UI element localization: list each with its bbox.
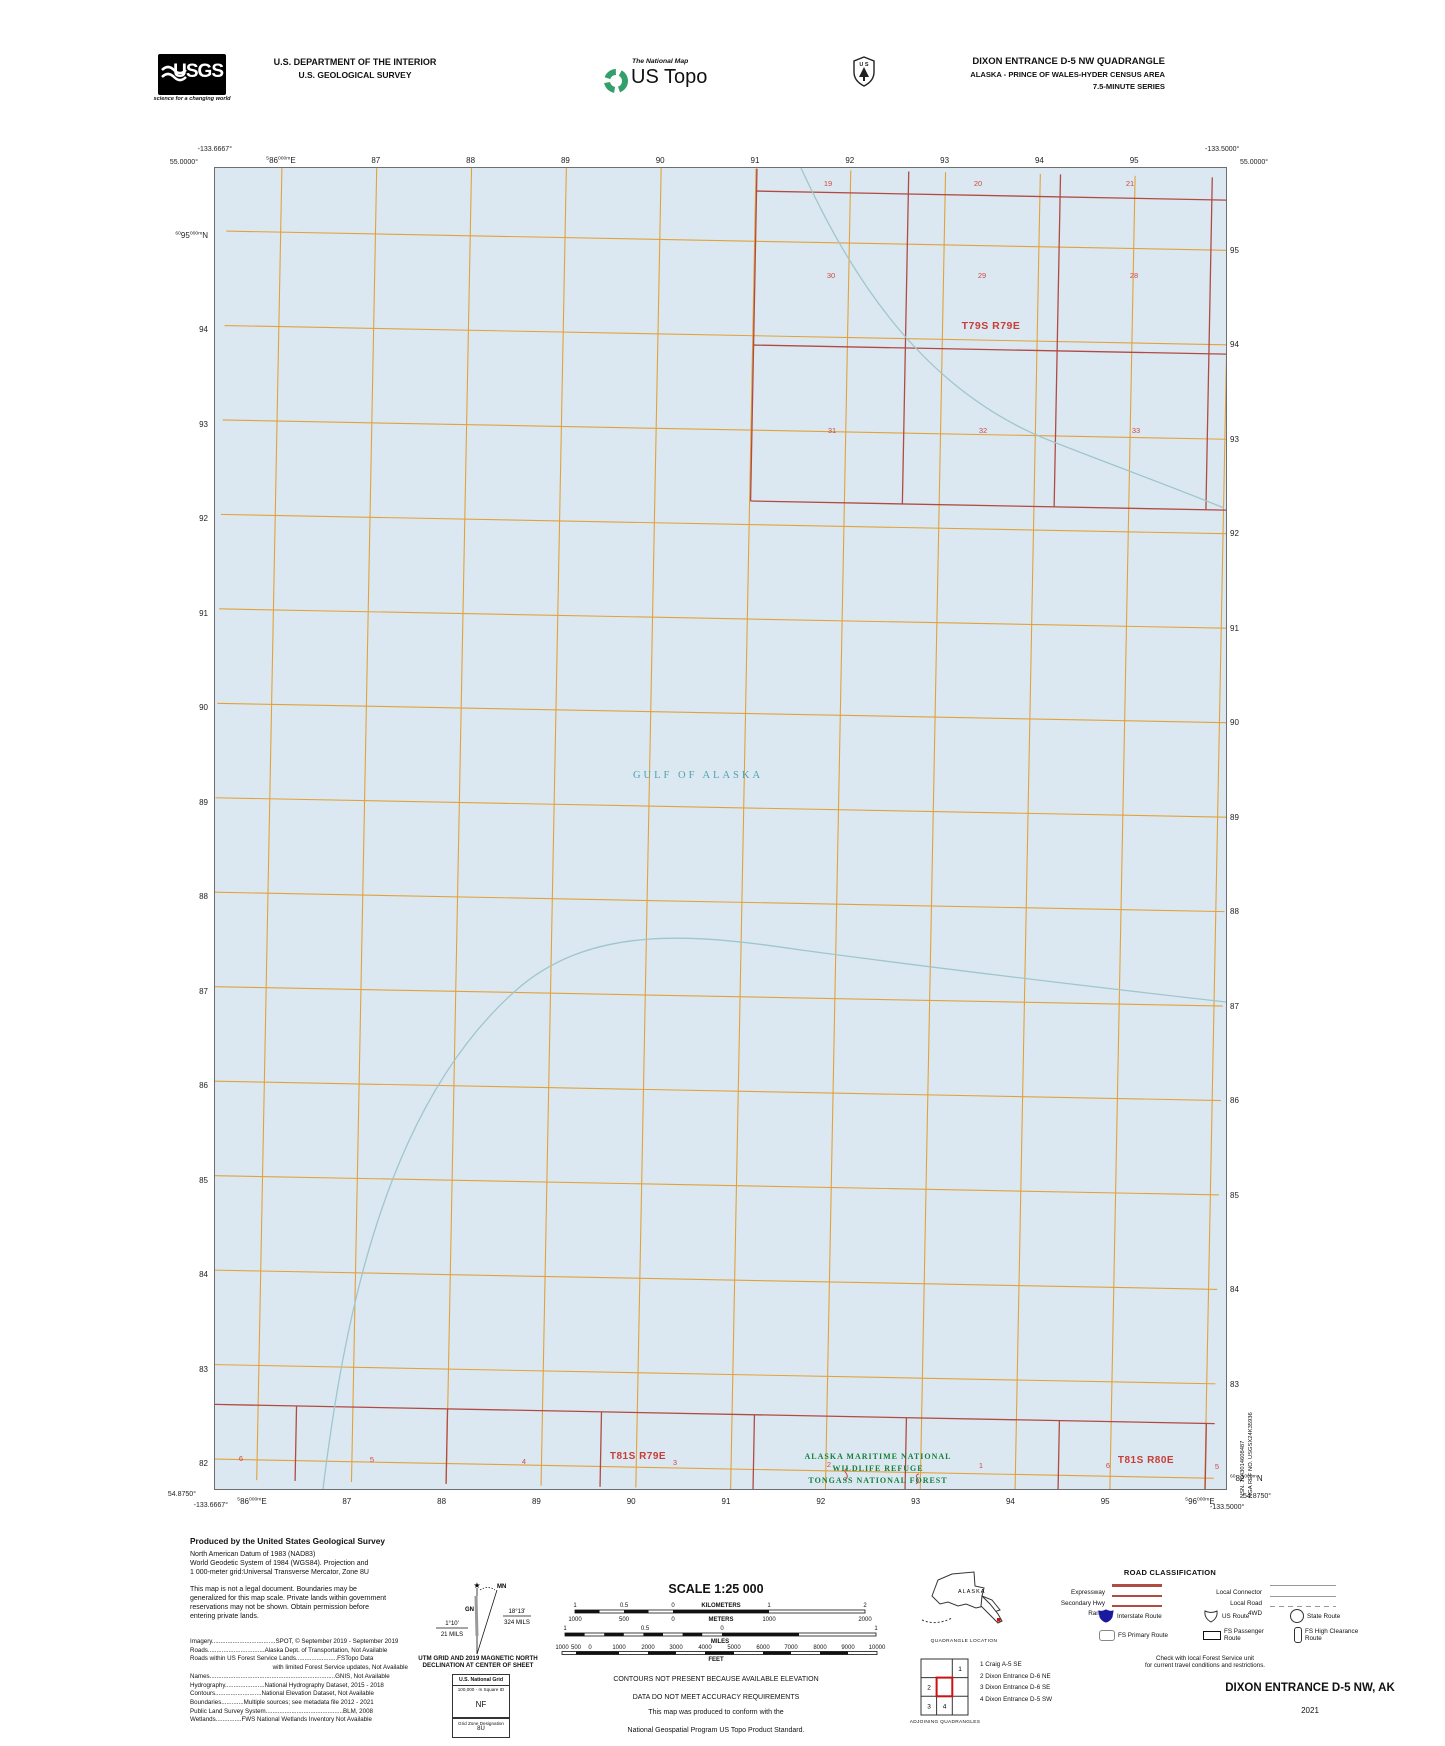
grid-label-right-93: 93: [1230, 429, 1294, 447]
section-number-33: 33: [1121, 420, 1151, 438]
section-number-19: 19: [813, 173, 843, 191]
svg-text:21 MILS: 21 MILS: [441, 1632, 463, 1638]
standard-note: This map was produced to conform with th…: [566, 1701, 866, 1737]
section-number-28: 28: [1119, 265, 1149, 283]
coord-bottom-left-lat: 54.8750°: [128, 1491, 196, 1498]
contour-note: CONTOURS NOT PRESENT BECAUSE AVAILABLE E…: [566, 1668, 866, 1704]
svg-text:0.5: 0.5: [641, 1626, 650, 1632]
svg-text:GN: GN: [465, 1607, 474, 1613]
grid-label-right-84: 84: [1230, 1279, 1294, 1297]
credit-line: Roads within US Forest Service Lands....…: [190, 1655, 420, 1664]
svg-text:500: 500: [619, 1617, 630, 1623]
svg-text:0: 0: [671, 1603, 675, 1609]
fs-note-line: Check with local Forest Service unit: [1075, 1655, 1335, 1662]
fs-passenger-route-label: FS Passenger Route: [1224, 1628, 1282, 1642]
svg-text:1000: 1000: [555, 1645, 569, 1651]
grid-label-top-88: 88: [441, 150, 501, 168]
section-number-29: 29: [967, 265, 997, 283]
usgs-logo-text: USGS: [173, 61, 223, 83]
produced-title: Produced by the United States Geological…: [190, 1536, 420, 1546]
forest-service-note: Check with local Forest Service unitfor …: [1075, 1655, 1335, 1669]
scale-bars: 10.5012KILOMETERS1000500010002000METERS1…: [548, 1598, 918, 1662]
quad-subtitle: ALASKA - PRINCE OF WALES-HYDER CENSUS AR…: [885, 70, 1165, 79]
grid-label-right-89: 89: [1230, 807, 1294, 825]
svg-text:1: 1: [958, 1666, 962, 1673]
grid-label-top-95: 95: [1104, 150, 1164, 168]
sheet-title: DIXON ENTRANCE D-5 NW, AK: [1210, 1682, 1410, 1694]
declination-caption-line: DECLINATION AT CENTER OF SHEET: [398, 1662, 558, 1669]
scale-title: SCALE 1:25 000: [616, 1582, 816, 1596]
adjoining-quadrangles-diagram: 1 2 3 4: [920, 1658, 970, 1718]
nga-ref-number: NGA REF NO. USGSX24K35936: [1248, 1348, 1254, 1498]
grid-label-bottom-95: 95: [1075, 1491, 1135, 1509]
grid-label-right-94: 94: [1230, 334, 1294, 352]
bottom-section-number-4: 4: [509, 1451, 539, 1469]
grid-label-left-86: 86: [144, 1075, 208, 1093]
grid-label-right-88: 88: [1230, 901, 1294, 919]
svg-text:0: 0: [720, 1626, 724, 1632]
grid-label-bottom-91: 91: [696, 1491, 756, 1509]
national-map-label: The National Map: [632, 58, 688, 65]
svg-text:1°10': 1°10': [445, 1621, 459, 1627]
svg-text:1: 1: [563, 1626, 567, 1632]
nsn-number: NSN. 7643014608487: [1240, 1348, 1246, 1498]
section-number-30: 30: [816, 265, 846, 283]
state-route-label: State Route: [1307, 1613, 1340, 1620]
grid-label-left-89: 89: [144, 792, 208, 810]
grid-label-left-90: 90: [144, 697, 208, 715]
grid-label-bottom-88: 88: [412, 1491, 472, 1509]
svg-text:4000: 4000: [698, 1645, 712, 1651]
coord-top-right-lon: -133.5000°: [1205, 146, 1239, 153]
svg-text:1000: 1000: [762, 1617, 776, 1623]
section-number-31: 31: [817, 420, 847, 438]
ustopo-label: US Topo: [631, 66, 707, 89]
section-number-32: 32: [968, 420, 998, 438]
road-red-line-2: [1112, 1595, 1162, 1597]
coord-bottom-left-lon: -133.6667°: [156, 1502, 228, 1509]
legal-line: reservations may not be shown. Obtain pe…: [190, 1603, 420, 1612]
legal-note: This map is not a legal document. Bounda…: [190, 1585, 420, 1621]
svg-text:FEET: FEET: [708, 1657, 724, 1662]
svg-text:2000: 2000: [641, 1645, 655, 1651]
township-label-t79s-r79e: T79S R79E: [901, 320, 1081, 332]
grid-label-left-82: 82: [144, 1453, 208, 1471]
road-gray-line-2: [1270, 1596, 1336, 1597]
svg-text:2: 2: [863, 1603, 867, 1609]
road-red-line-1: [1112, 1584, 1162, 1587]
edge-reference-numbers: NSN. 7643014608487 NGA REF NO. USGSX24K3…: [1240, 1348, 1254, 1498]
forest-service-shield-icon: U S: [851, 56, 877, 88]
credit-line: with limited Forest Service updates, Not…: [190, 1664, 408, 1673]
standard-note-line: This map was produced to conform with th…: [566, 1701, 866, 1719]
svg-text:1: 1: [573, 1603, 577, 1609]
grid-label-bottom-92: 92: [791, 1491, 851, 1509]
grid-label-left-88: 88: [144, 886, 208, 904]
adjoining-quad-name: 2 Dixon Entrance D-6 NE: [980, 1671, 1052, 1683]
declination-diagram: ★ GN MN 18°13' 324 MILS 1°10' 21 MILS: [418, 1578, 542, 1662]
grid-label-top-93: 93: [915, 150, 975, 168]
section-number-21: 21: [1115, 173, 1145, 191]
standard-note-line: National Geospatial Program US Topo Prod…: [566, 1719, 866, 1737]
svg-text:1: 1: [874, 1626, 878, 1632]
adjoining-quadrangles-caption: ADJOINING QUADRANGLES: [908, 1720, 982, 1725]
quad-series: 7.5-MINUTE SERIES: [885, 82, 1165, 91]
grid-label-top-92: 92: [820, 150, 880, 168]
svg-text:0: 0: [671, 1617, 675, 1623]
coord-top-right-lat: 55.0000°: [1240, 159, 1268, 166]
usng-box: U.S. National Grid 100,000 - m Square ID…: [452, 1674, 510, 1738]
datum-lines: North American Datum of 1983 (NAD83)Worl…: [190, 1550, 420, 1577]
svg-text:6000: 6000: [756, 1645, 770, 1651]
datum-line: World Geodetic System of 1984 (WGS84). P…: [190, 1559, 420, 1568]
grid-label-left-84: 84: [144, 1264, 208, 1282]
grid-label-bottom-90: 90: [601, 1491, 661, 1509]
credit-line: Imagery.................................…: [190, 1638, 420, 1647]
produced-block: Produced by the United States Geological…: [190, 1536, 420, 1725]
fs-primary-route-label: FS Primary Route: [1118, 1632, 1168, 1639]
road-classification-title: ROAD CLASSIFICATION: [1080, 1568, 1260, 1577]
declination-caption-line: UTM GRID AND 2019 MAGNETIC NORTH: [398, 1655, 558, 1662]
svg-text:7000: 7000: [784, 1645, 798, 1651]
credit-line: Hydrography.......................Nation…: [190, 1682, 420, 1691]
fs-note-line: for current travel conditions and restri…: [1075, 1662, 1335, 1669]
svg-text:U S: U S: [859, 62, 869, 68]
grid-label-top-90: 90: [630, 150, 690, 168]
township-label-t81s-r79e: T81S R79E: [558, 1451, 718, 1462]
interstate-route-label: Interstate Route: [1117, 1613, 1162, 1620]
svg-text:0.5: 0.5: [620, 1603, 629, 1609]
grid-label-left-93: 93: [144, 414, 208, 432]
grid-label-right-86: 86: [1230, 1090, 1294, 1108]
section-number-20: 20: [963, 173, 993, 191]
quadrangle-location-caption: QUADRANGLE LOCATION: [918, 1639, 1010, 1644]
svg-text:500: 500: [571, 1645, 582, 1651]
svg-text:3000: 3000: [669, 1645, 683, 1651]
national-map-icon: [602, 66, 630, 94]
sheet-year: 2021: [1210, 1706, 1410, 1715]
grid-label-top-89: 89: [535, 150, 595, 168]
grid-label-right-92: 92: [1230, 523, 1294, 541]
legal-line: generalized for this map scale. Private …: [190, 1594, 420, 1603]
svg-text:2000: 2000: [858, 1617, 872, 1623]
interstate-shield-icon: [1098, 1609, 1114, 1623]
coord-top-left-lat: 55.0000°: [130, 159, 198, 166]
svg-text:KILOMETERS: KILOMETERS: [701, 1603, 740, 1609]
svg-text:ALASKA: ALASKA: [958, 1589, 985, 1595]
grid-label-right-87: 87: [1230, 996, 1294, 1014]
grid-label-top-91: 91: [725, 150, 785, 168]
dept-line2: U.S. GEOLOGICAL SURVEY: [250, 70, 460, 80]
grid-label-left-92: 92: [144, 508, 208, 526]
grid-label-bottom-96: 596000mE: [1170, 1491, 1230, 1509]
adjoining-quad-name: 4 Dixon Entrance D-5 SW: [980, 1694, 1052, 1706]
contour-note-line: CONTOURS NOT PRESENT BECAUSE AVAILABLE E…: [566, 1668, 866, 1686]
svg-text:0: 0: [588, 1645, 592, 1651]
usgs-topo-sheet: USGS science for a changing world U.S. D…: [0, 0, 1445, 1746]
credit-line: Boundaries.............Multiple sources;…: [190, 1699, 420, 1708]
svg-text:324 MILS: 324 MILS: [504, 1620, 530, 1626]
adjoining-quad-name: 1 Craig A-5 SE: [980, 1659, 1052, 1671]
grid-label-left-87: 87: [144, 981, 208, 999]
svg-text:1000: 1000: [568, 1617, 582, 1623]
legal-line: entering private lands.: [190, 1612, 420, 1621]
grid-label-left-85: 85: [144, 1170, 208, 1188]
grid-label-bottom-86: 586000mE: [222, 1491, 282, 1509]
map-canvas: 192021302928313233T79S R79E65432165T81S …: [214, 167, 1227, 1490]
legal-line: This map is not a legal document. Bounda…: [190, 1585, 420, 1594]
svg-text:1: 1: [767, 1603, 771, 1609]
grid-label-bottom-94: 94: [980, 1491, 1040, 1509]
dept-line1: U.S. DEPARTMENT OF THE INTERIOR: [250, 57, 460, 67]
state-route-circle-icon: [1290, 1609, 1304, 1623]
credit-line: Roads.................................Al…: [190, 1647, 420, 1656]
datum-line: North American Datum of 1983 (NAD83): [190, 1550, 420, 1559]
datum-line: 1 000-meter grid:Universal Transverse Me…: [190, 1568, 420, 1577]
grid-label-left-94: 94: [144, 319, 208, 337]
grid-label-right-85: 85: [1230, 1185, 1294, 1203]
grid-label-right-91: 91: [1230, 618, 1294, 636]
grid-label-top-86: 586000mE: [251, 150, 311, 168]
quad-location-marker: [997, 1618, 1001, 1622]
svg-text:18°13': 18°13': [509, 1609, 526, 1615]
adjoining-quad-name: 3 Dixon Entrance D-6 SE: [980, 1682, 1052, 1694]
svg-text:1000: 1000: [612, 1645, 626, 1651]
ustopo-logo: The National Map US Topo: [600, 56, 730, 102]
grid-label-bottom-87: 87: [317, 1491, 377, 1509]
svg-text:METERS: METERS: [708, 1617, 733, 1623]
usng-zone: 8U: [453, 1726, 509, 1732]
svg-text:8000: 8000: [813, 1645, 827, 1651]
svg-text:MN: MN: [497, 1584, 506, 1590]
svg-text:2: 2: [927, 1685, 931, 1692]
quad-title: DIXON ENTRANCE D-5 NW QUADRANGLE: [885, 56, 1165, 67]
us-route-label: US Route: [1222, 1613, 1249, 1620]
svg-text:4: 4: [943, 1704, 947, 1711]
water-body-label: GULF OF ALASKA: [593, 770, 803, 781]
usgs-tagline: science for a changing world: [152, 96, 232, 102]
road-gray-line-3: [1270, 1606, 1336, 1607]
refuge-label-line3: TONGASS NATIONAL FOREST: [728, 1470, 1028, 1488]
grid-label-top-94: 94: [1009, 150, 1069, 168]
coord-top-left-lon: -133.6667°: [160, 146, 232, 153]
bottom-section-number-5: 5: [357, 1449, 387, 1467]
credit-line: Public Land Survey System...............…: [190, 1708, 420, 1717]
fs-primary-route-icon: [1099, 1630, 1115, 1641]
grid-label-left-83: 83: [144, 1359, 208, 1377]
dept-block: U.S. DEPARTMENT OF THE INTERIOR U.S. GEO…: [250, 57, 460, 80]
bottom-section-number-6: 6: [226, 1448, 256, 1466]
grid-label-left-95: 6095000mN: [144, 225, 208, 243]
grid-label-bottom-89: 89: [506, 1491, 566, 1509]
road-red-line-3: [1112, 1605, 1162, 1607]
fs-high-clearance-label: FS High Clearance Route: [1305, 1628, 1367, 1642]
grid-label-right-95: 95: [1230, 240, 1294, 258]
road-left-label-3: Ramp: [1033, 1602, 1105, 1620]
declination-caption: UTM GRID AND 2019 MAGNETIC NORTHDECLINAT…: [398, 1655, 558, 1669]
data-credits: Imagery.................................…: [190, 1638, 420, 1725]
map-grid-graphics: [215, 168, 1226, 1489]
fs-passenger-route-icon: [1203, 1631, 1221, 1640]
adjoining-quadrangles-list: 1 Craig A-5 SE2 Dixon Entrance D-6 NE3 D…: [980, 1659, 1052, 1705]
grid-label-bottom-93: 93: [886, 1491, 946, 1509]
svg-text:5000: 5000: [727, 1645, 741, 1651]
usgs-logo: USGS: [158, 54, 226, 95]
usng-square-id: NF: [453, 1700, 509, 1709]
township-label-t81s-r80e: T81S R80E: [1066, 1455, 1226, 1466]
usng-title: U.S. National Grid: [453, 1677, 509, 1683]
usng-subtitle: 100,000 - m Square ID: [453, 1687, 509, 1692]
svg-text:9000: 9000: [841, 1645, 855, 1651]
quad-title-block: DIXON ENTRANCE D-5 NW QUADRANGLE ALASKA …: [885, 56, 1165, 91]
svg-text:10000: 10000: [869, 1645, 886, 1651]
grid-label-left-91: 91: [144, 603, 208, 621]
alaska-locator-map: ALASKA: [918, 1566, 1010, 1638]
credit-line: Names...................................…: [190, 1673, 420, 1682]
credit-line: Contours...........................Natio…: [190, 1690, 420, 1699]
credit-line: Wetlands...............FWS National Wetl…: [190, 1716, 420, 1725]
grid-label-right-90: 90: [1230, 712, 1294, 730]
fs-high-clearance-icon: [1294, 1627, 1302, 1643]
grid-label-top-87: 87: [346, 150, 406, 168]
us-route-shield-icon: [1203, 1609, 1219, 1623]
road-gray-line-1: [1270, 1585, 1336, 1586]
svg-text:3: 3: [927, 1704, 931, 1711]
